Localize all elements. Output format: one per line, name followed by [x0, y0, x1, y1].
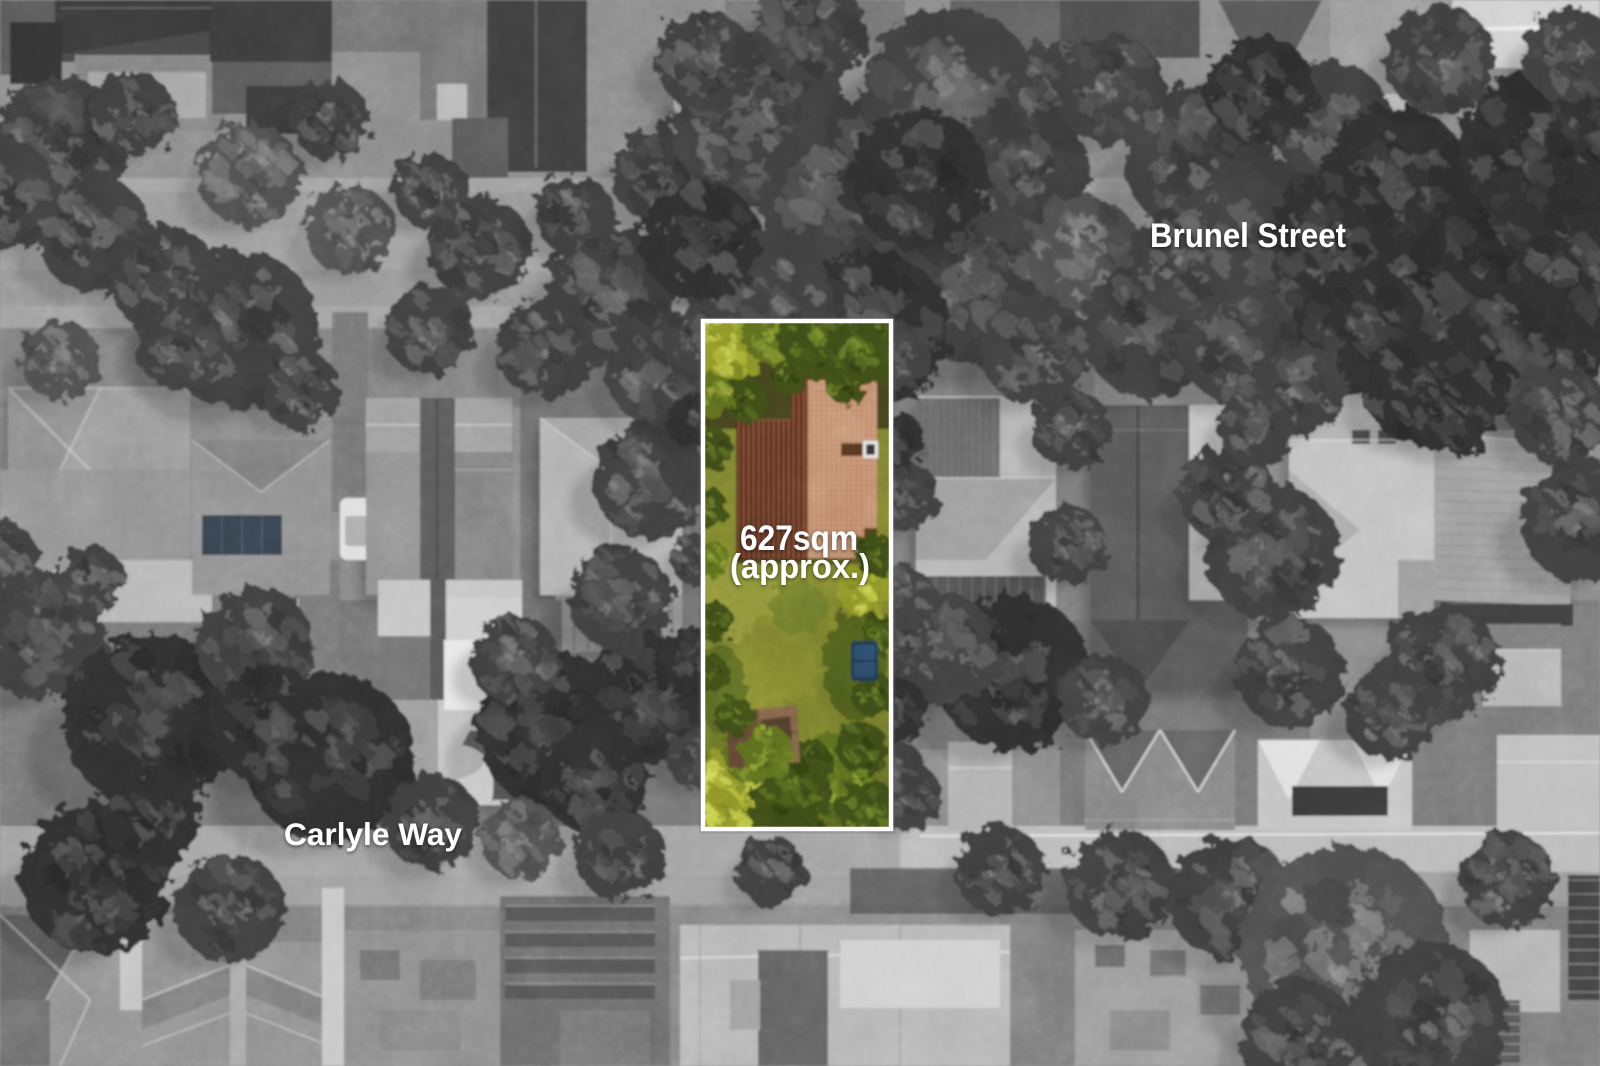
- svg-text:Carlyle Way: Carlyle Way: [284, 816, 462, 852]
- svg-text:(approx.): (approx.): [730, 548, 870, 586]
- svg-text:Brunel Street: Brunel Street: [1150, 217, 1346, 255]
